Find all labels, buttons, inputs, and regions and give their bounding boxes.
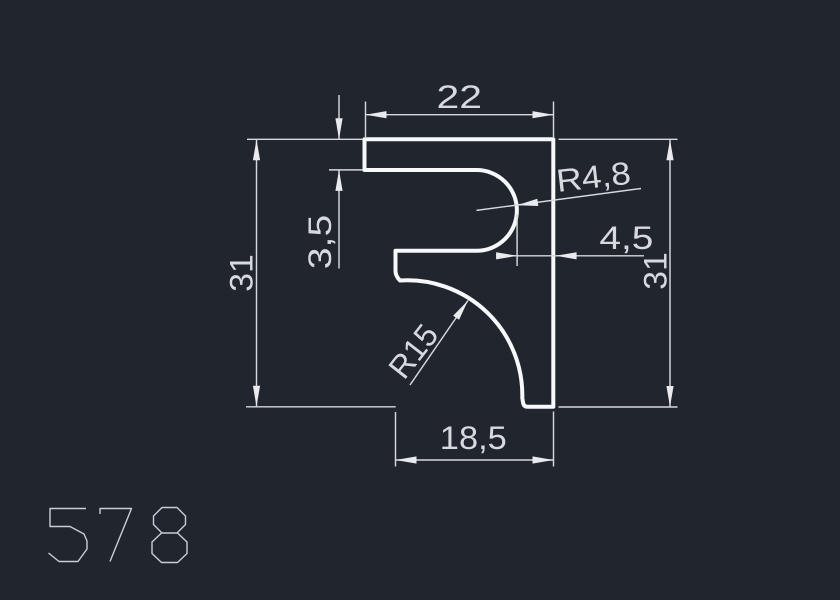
- svg-text:3,5: 3,5: [302, 215, 338, 270]
- svg-text:18,5: 18,5: [440, 420, 507, 456]
- svg-text:31: 31: [638, 252, 674, 290]
- svg-text:31: 31: [224, 254, 260, 292]
- svg-text:22: 22: [437, 79, 483, 115]
- svg-text:4,5: 4,5: [599, 220, 653, 256]
